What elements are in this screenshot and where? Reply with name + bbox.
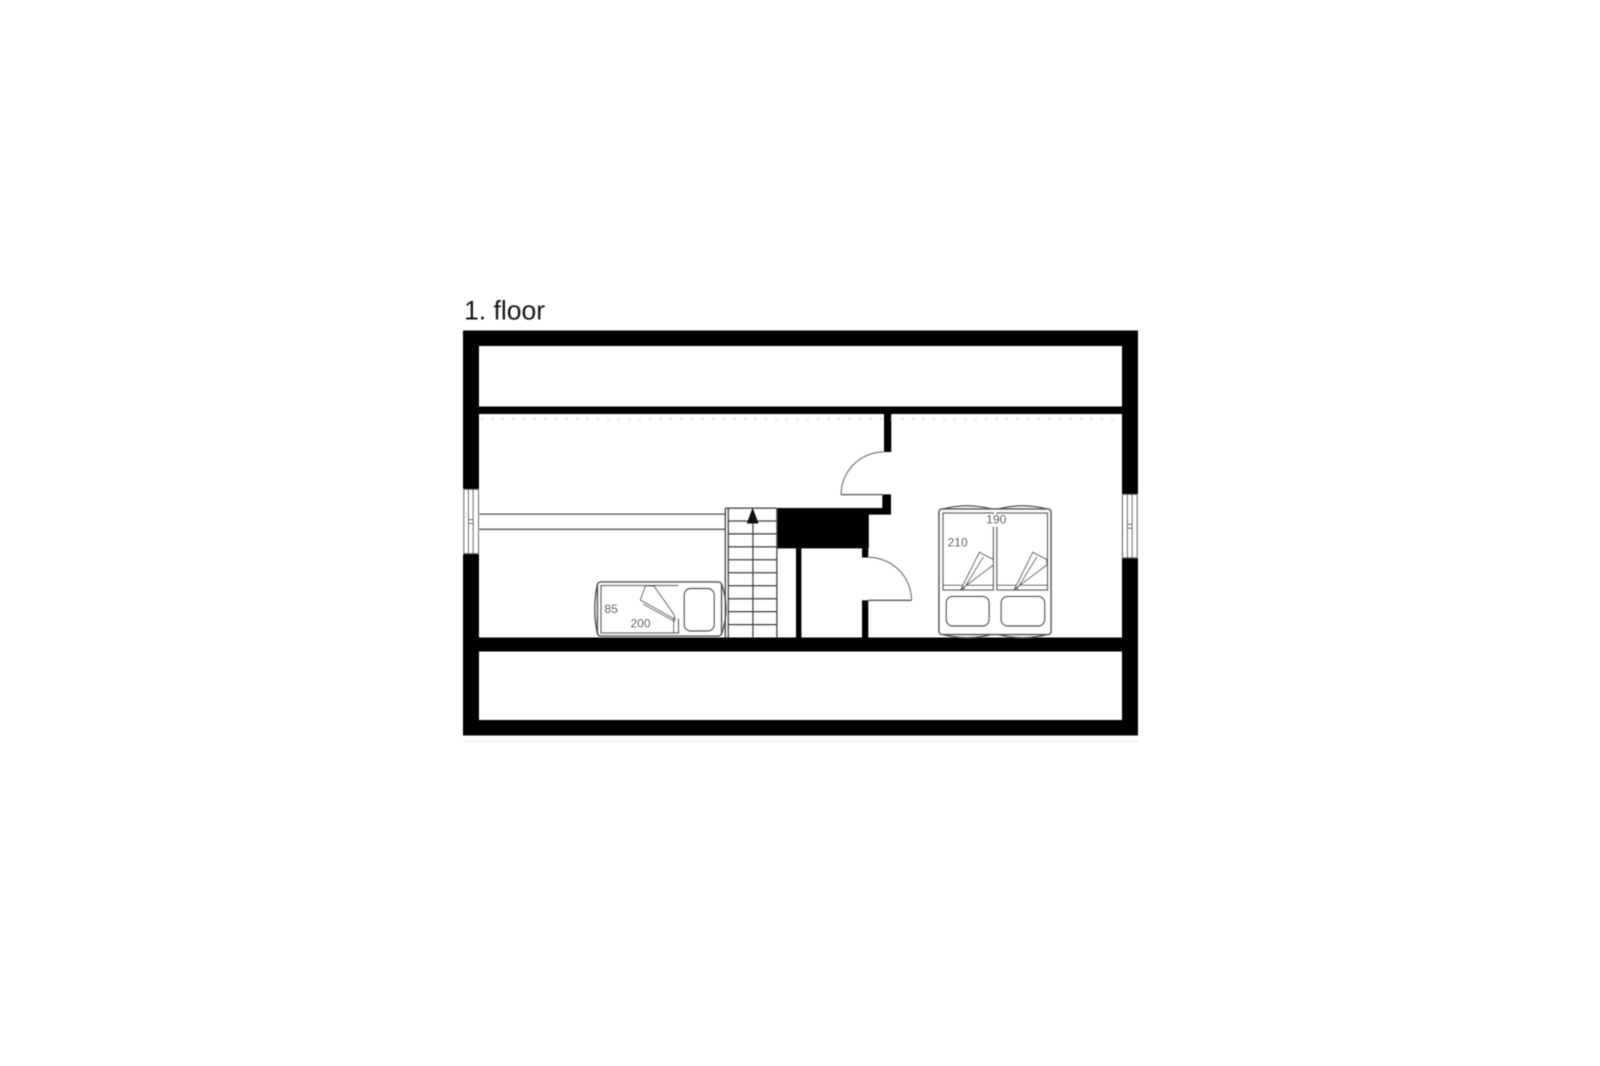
svg-text:200: 200 (631, 617, 651, 631)
svg-text:190: 190 (986, 512, 1006, 526)
svg-text:85: 85 (605, 602, 619, 616)
svg-text:210: 210 (948, 536, 968, 550)
svg-text:1. floor: 1. floor (464, 296, 545, 326)
